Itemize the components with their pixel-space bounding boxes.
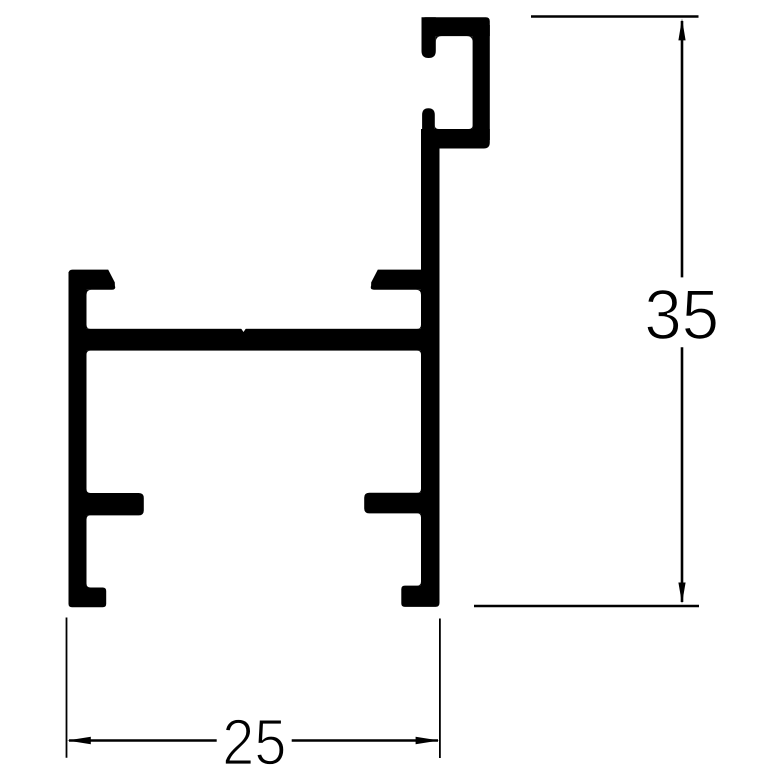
svg-text:35: 35 <box>644 276 719 355</box>
svg-text:25: 25 <box>222 707 286 779</box>
